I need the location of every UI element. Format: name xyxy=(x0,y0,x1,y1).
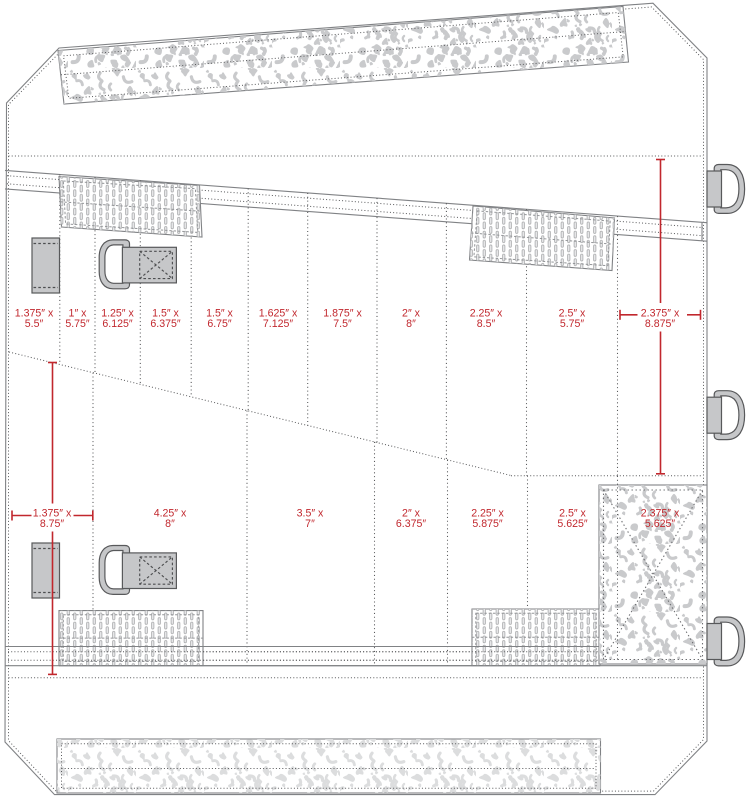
svg-text:6.75″: 6.75″ xyxy=(207,318,232,330)
svg-text:6.375″: 6.375″ xyxy=(396,518,427,530)
svg-text:6.125″: 6.125″ xyxy=(102,318,133,330)
svg-text:5.75″: 5.75″ xyxy=(65,318,90,330)
svg-text:5.75″: 5.75″ xyxy=(560,318,585,330)
svg-text:7″: 7″ xyxy=(305,518,315,530)
svg-text:8.875″: 8.875″ xyxy=(645,318,676,330)
svg-text:8″: 8″ xyxy=(406,318,416,330)
svg-text:5.875″: 5.875″ xyxy=(472,518,503,530)
svg-text:5.625″: 5.625″ xyxy=(645,518,676,530)
svg-text:5.625″: 5.625″ xyxy=(557,518,588,530)
svg-text:8″: 8″ xyxy=(165,518,175,530)
svg-text:7.125″: 7.125″ xyxy=(263,318,294,330)
svg-text:5.5″: 5.5″ xyxy=(25,318,44,330)
svg-text:6.375″: 6.375″ xyxy=(150,318,181,330)
svg-text:8.5″: 8.5″ xyxy=(477,318,496,330)
svg-text:8.75″: 8.75″ xyxy=(40,518,65,530)
svg-text:7.5″: 7.5″ xyxy=(333,318,352,330)
